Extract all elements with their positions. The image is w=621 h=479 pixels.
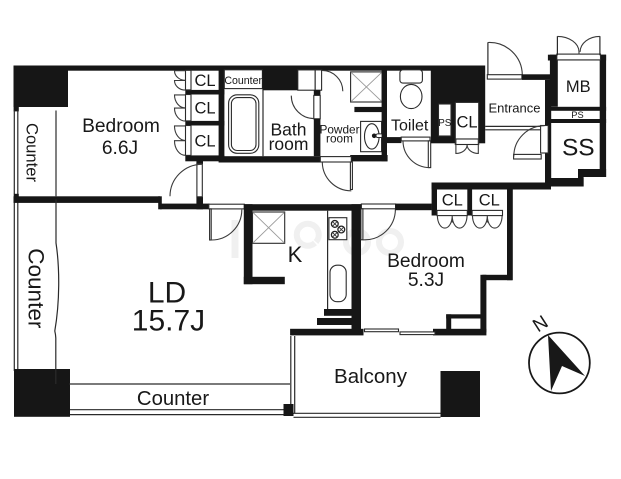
- svg-text:Counter: Counter: [224, 75, 262, 87]
- svg-text:CL: CL: [194, 100, 215, 118]
- svg-text:CL: CL: [194, 133, 215, 151]
- svg-text:6.6J: 6.6J: [102, 138, 138, 159]
- svg-text:Counter: Counter: [24, 248, 49, 329]
- svg-text:K: K: [288, 242, 303, 267]
- svg-text:Bedroom: Bedroom: [82, 116, 160, 137]
- svg-text:room: room: [326, 132, 353, 146]
- svg-text:Counter: Counter: [137, 388, 209, 410]
- svg-text:CL: CL: [194, 72, 215, 90]
- svg-text:CL: CL: [442, 192, 463, 210]
- svg-text:PS: PS: [438, 118, 452, 129]
- svg-text:CL: CL: [479, 192, 500, 210]
- svg-text:PS: PS: [571, 110, 583, 120]
- svg-text:15.7J: 15.7J: [132, 305, 205, 338]
- svg-text:Balcony: Balcony: [334, 365, 408, 388]
- svg-text:SS: SS: [562, 135, 595, 162]
- svg-text:Toilet: Toilet: [391, 118, 429, 135]
- svg-text:Counter: Counter: [22, 123, 41, 183]
- svg-text:Entrance: Entrance: [488, 101, 540, 116]
- svg-text:CL: CL: [456, 114, 477, 132]
- svg-text:MB: MB: [566, 78, 591, 96]
- svg-text:room: room: [269, 134, 309, 154]
- svg-text:5.3J: 5.3J: [408, 270, 444, 291]
